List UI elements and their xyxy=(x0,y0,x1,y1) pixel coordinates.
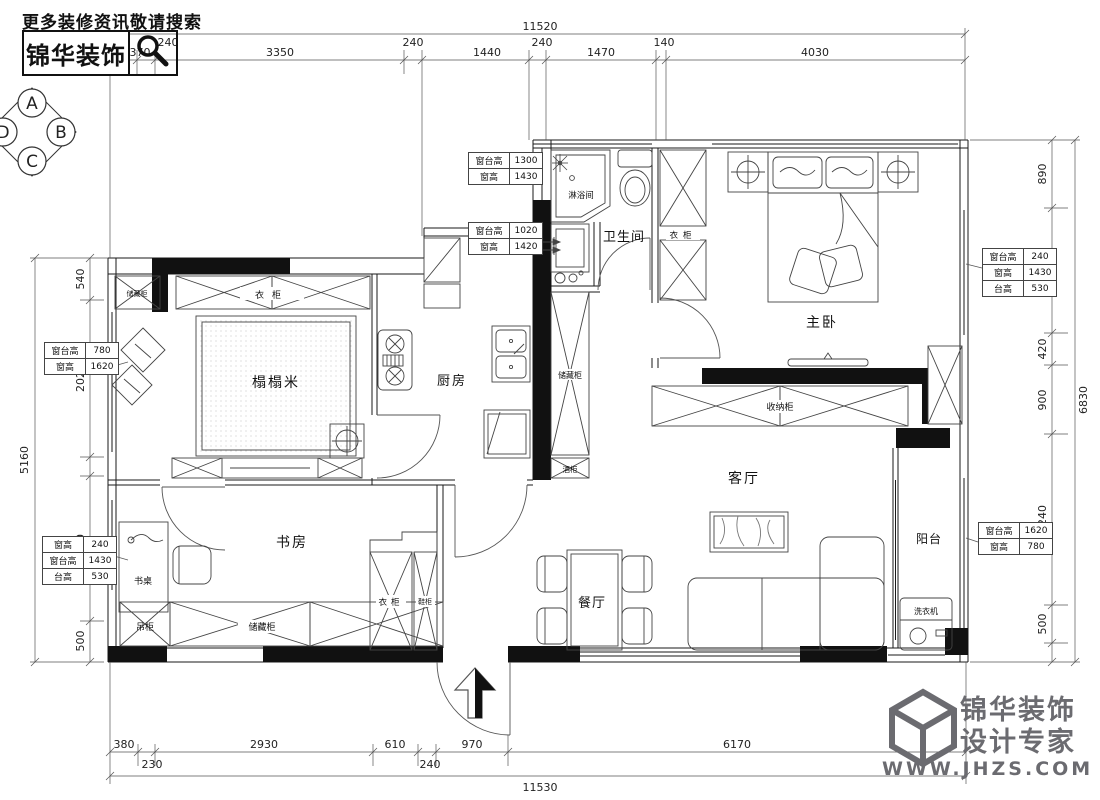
label-shoe-cabinet: 鞋柜 xyxy=(418,597,432,606)
entrance-arrow-icon xyxy=(455,668,495,718)
dim-bottom-overall: 11530 xyxy=(523,781,558,794)
room-label-balcony: 阳台 xyxy=(916,531,942,546)
label-washer: 洗衣机 xyxy=(914,606,938,616)
dim-bottom-seg-6: 6170 xyxy=(723,738,751,751)
dim-right-seg-3: 900 xyxy=(1036,390,1049,411)
label-hanging-cabinet: 吊柜 xyxy=(136,621,154,633)
dim-right-seg-5: 500 xyxy=(1036,614,1049,635)
dim-bottom-seg-3: 610 xyxy=(385,738,406,751)
floorplan-drawing: 榻榻米 厨房 卫生间 淋浴间 主卧 书房 客厅 餐厅 阳台 衣柜 储藏柜 衣柜 … xyxy=(0,0,1100,800)
label-storage-study: 储藏柜 xyxy=(248,621,275,633)
dim-bottom-seg-1: 230 xyxy=(142,758,163,771)
room-label-dining: 餐厅 xyxy=(578,595,606,611)
compass-letter-e: B xyxy=(55,123,67,143)
room-label-bathroom: 卫生间 xyxy=(603,230,645,245)
room-label-shower: 淋浴间 xyxy=(568,190,594,201)
dim-top-seg-8: 4030 xyxy=(801,46,829,59)
label-collect-cabinet: 收纳柜 xyxy=(766,401,793,413)
label-wine-cabinet: 酒柜 xyxy=(563,464,578,474)
dim-top-seg-3: 240 xyxy=(403,36,424,49)
room-label-tatami: 榻榻米 xyxy=(252,375,300,391)
label-storage-tatami: 储藏柜 xyxy=(127,289,148,298)
brand-logo: 锦华装饰 xyxy=(22,30,178,76)
orientation-compass: A B C D xyxy=(0,86,78,178)
dim-left-seg-3: 500 xyxy=(74,631,87,652)
dim-bottom-seg-2: 2930 xyxy=(250,738,278,751)
label-wardrobe-study: 衣柜 xyxy=(378,597,403,608)
dim-right-seg-2: 420 xyxy=(1036,339,1049,360)
label-wardrobe-bath: 衣柜 xyxy=(669,230,696,241)
dim-top-seg-5: 240 xyxy=(532,36,553,49)
dim-left-overall: 5160 xyxy=(18,446,31,474)
dim-top-seg-7: 140 xyxy=(654,36,675,49)
dim-left-seg-0: 540 xyxy=(74,269,87,290)
window-table-tatami: 窗台高780 窗高1620 xyxy=(44,342,119,375)
room-label-study: 书房 xyxy=(276,535,308,551)
dim-bottom-seg-4: 240 xyxy=(420,758,441,771)
floorplan-page: 榻榻米 厨房 卫生间 淋浴间 主卧 书房 客厅 餐厅 阳台 衣柜 储藏柜 衣柜 … xyxy=(0,0,1100,800)
dim-bottom-seg-0: 380 xyxy=(114,738,135,751)
room-label-master-bedroom: 主卧 xyxy=(806,315,838,331)
dim-top-overall: 11520 xyxy=(523,20,558,33)
window-table-balcony: 窗台高1620 窗高780 xyxy=(978,522,1053,555)
brand-name: 锦华装饰 xyxy=(24,32,130,74)
label-wardrobe-tatami: 衣柜 xyxy=(255,289,289,301)
watermark-website: WWW.JHZS.COM xyxy=(882,758,1093,780)
dim-right-overall: 6830 xyxy=(1077,386,1090,414)
room-label-kitchen: 厨房 xyxy=(437,373,467,389)
window-table-vanity: 窗台高1020 窗高1420 xyxy=(468,222,543,255)
window-table-bath-north: 窗台高1300 窗高1430 xyxy=(468,152,543,185)
dim-top-seg-4: 1440 xyxy=(473,46,501,59)
magnifier-cell xyxy=(130,32,176,74)
window-table-bedroom: 窗台高240 窗高1430 台高530 xyxy=(982,248,1057,297)
search-icon xyxy=(130,32,174,70)
window-table-study: 窗高240 窗台高1430 台高530 xyxy=(42,536,117,585)
compass-letter-w: D xyxy=(0,123,10,143)
dim-top-seg-6: 1470 xyxy=(587,46,615,59)
watermark-tagline: 设计专家 xyxy=(960,720,1076,759)
label-desk: 书桌 xyxy=(134,575,152,587)
label-storage-kitchen: 储藏柜 xyxy=(558,370,582,380)
dimension-texts: 11520 370 240 3350 240 1440 240 1470 140… xyxy=(18,20,1090,794)
compass-letter-n: A xyxy=(26,94,38,114)
dim-right-seg-0: 890 xyxy=(1036,164,1049,185)
dim-top-seg-2: 3350 xyxy=(266,46,294,59)
compass-letter-s: C xyxy=(26,152,38,172)
room-label-living: 客厅 xyxy=(728,470,760,487)
dim-bottom-seg-5: 970 xyxy=(462,738,483,751)
